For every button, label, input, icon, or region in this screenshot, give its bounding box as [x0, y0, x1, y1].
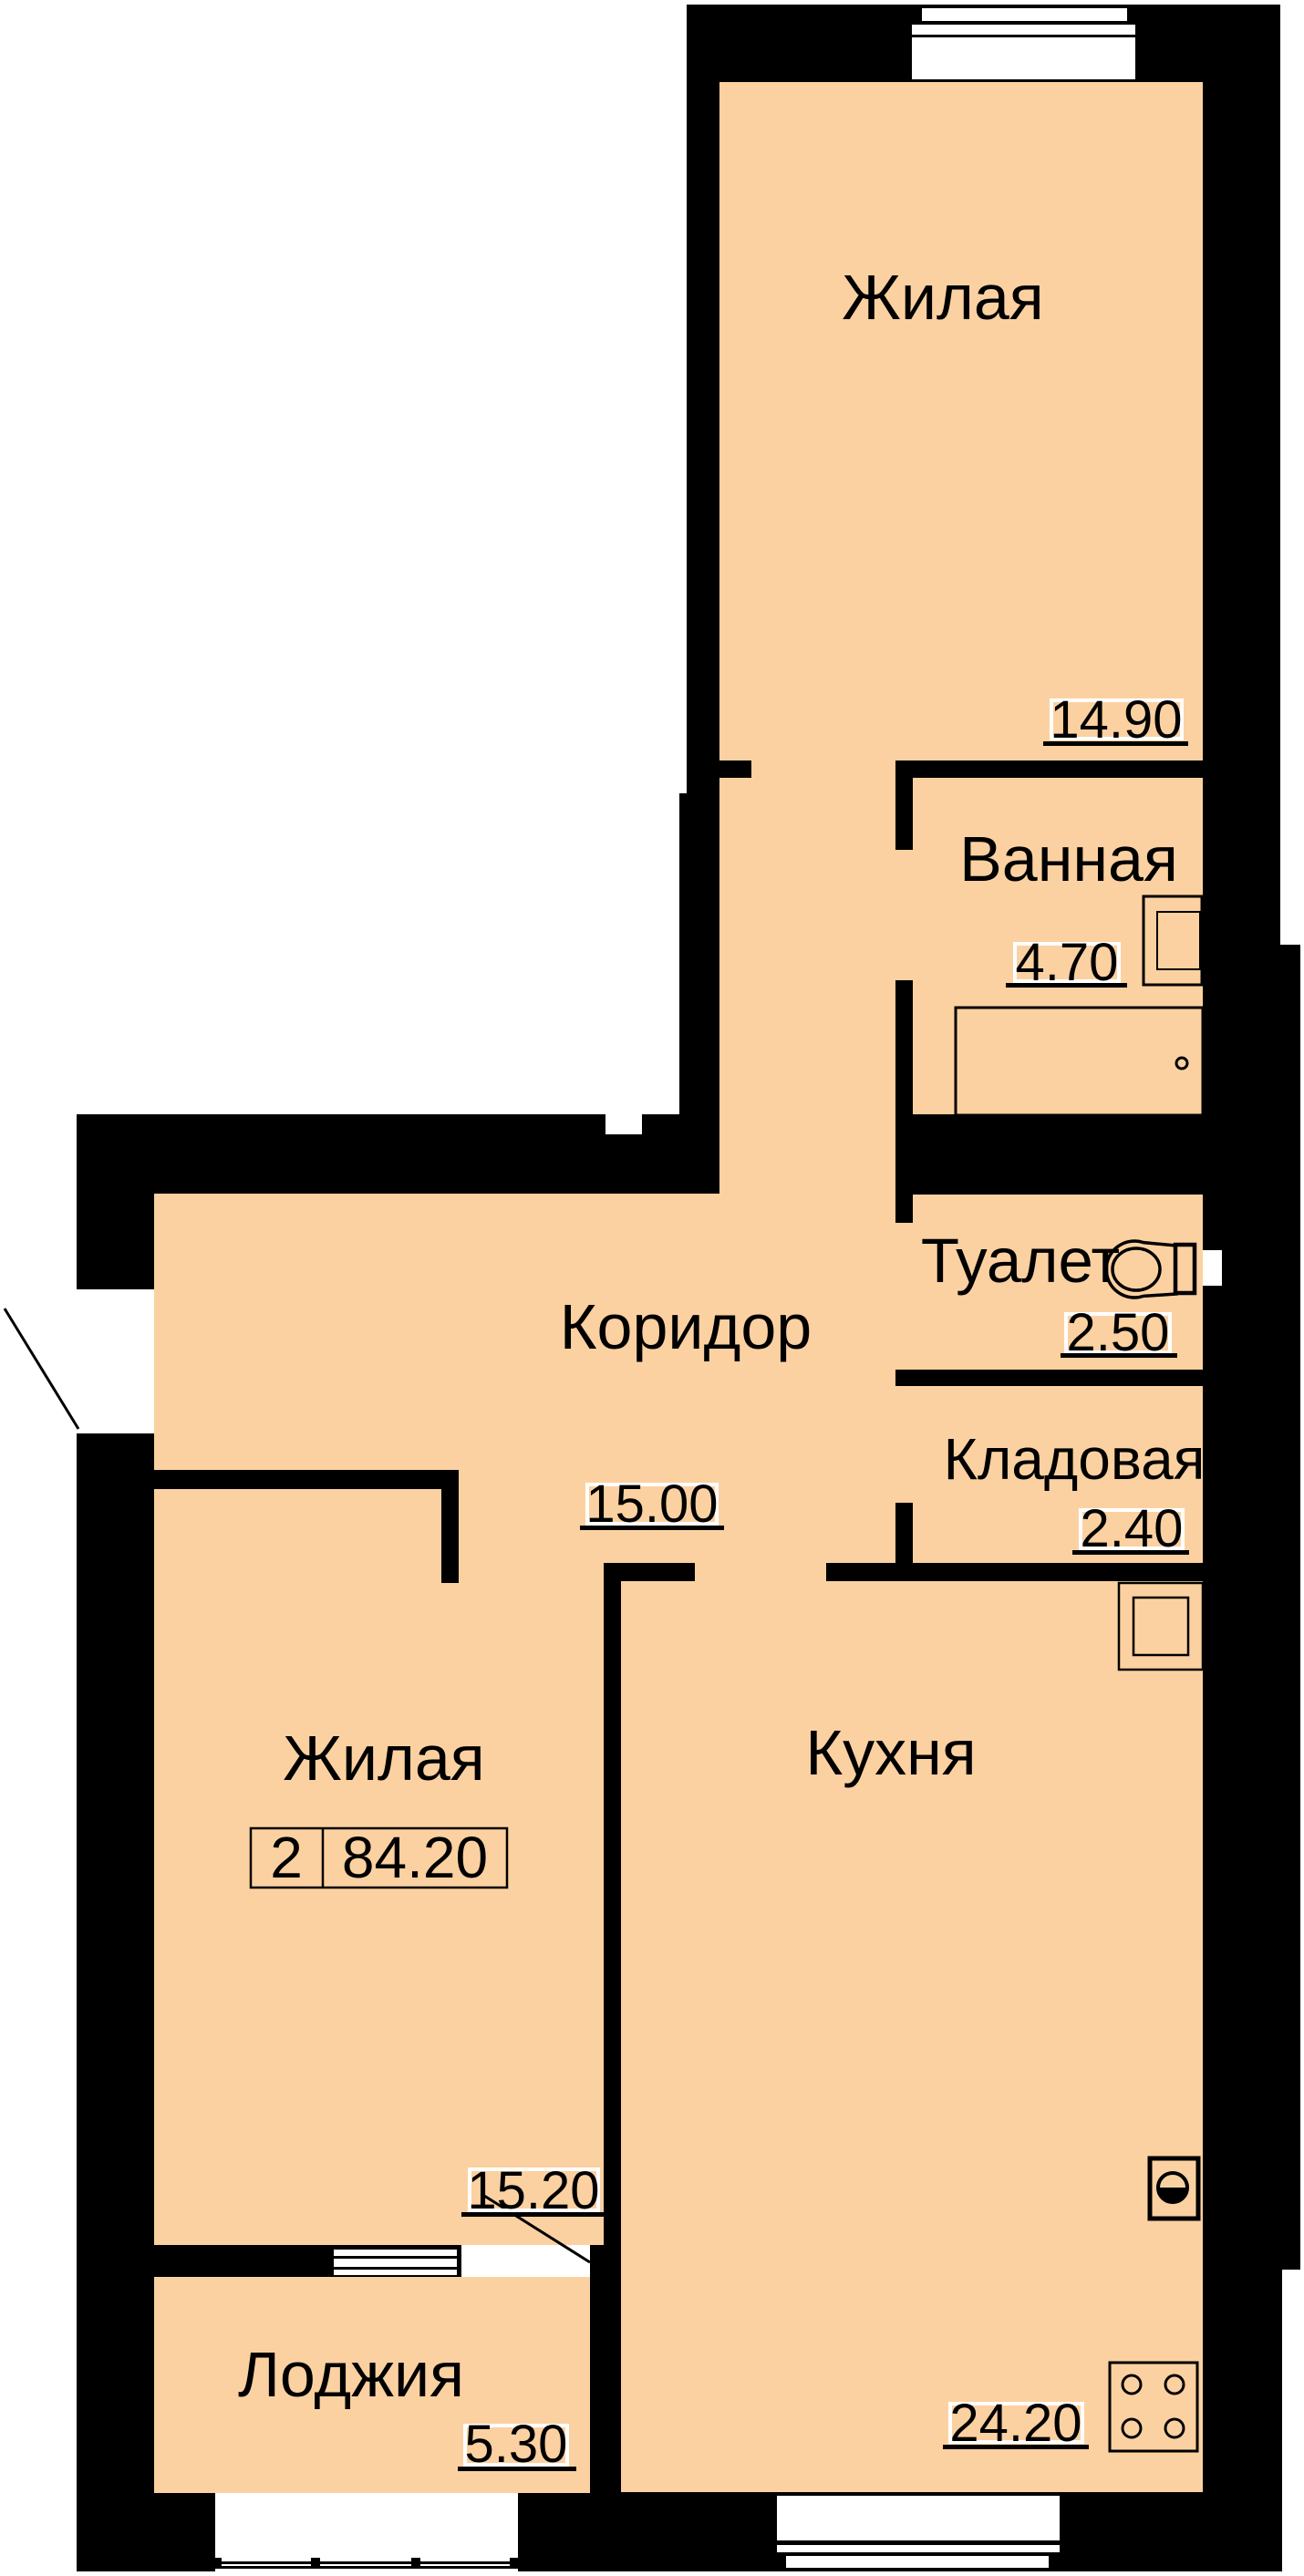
svg-text:Жилая: Жилая — [283, 1723, 484, 1794]
svg-text:Ванная: Ванная — [959, 823, 1178, 895]
svg-text:84.20: 84.20 — [342, 1825, 488, 1890]
svg-text:5.30: 5.30 — [465, 2415, 568, 2474]
svg-text:Коридор: Коридор — [560, 1291, 812, 1362]
svg-text:Лоджия: Лоджия — [238, 2339, 464, 2410]
svg-text:14.90: 14.90 — [1050, 690, 1182, 750]
svg-text:Жилая: Жилая — [842, 262, 1043, 333]
svg-text:Кладовая: Кладовая — [944, 1426, 1206, 1492]
svg-text:2.40: 2.40 — [1081, 1499, 1184, 1558]
svg-text:Кухня: Кухня — [805, 1717, 976, 1788]
svg-text:15.00: 15.00 — [585, 1474, 718, 1534]
svg-text:Туалет: Туалет — [921, 1226, 1120, 1296]
svg-text:24.20: 24.20 — [949, 2394, 1081, 2453]
svg-text:2: 2 — [270, 1825, 303, 1890]
svg-text:15.20: 15.20 — [467, 2161, 599, 2220]
